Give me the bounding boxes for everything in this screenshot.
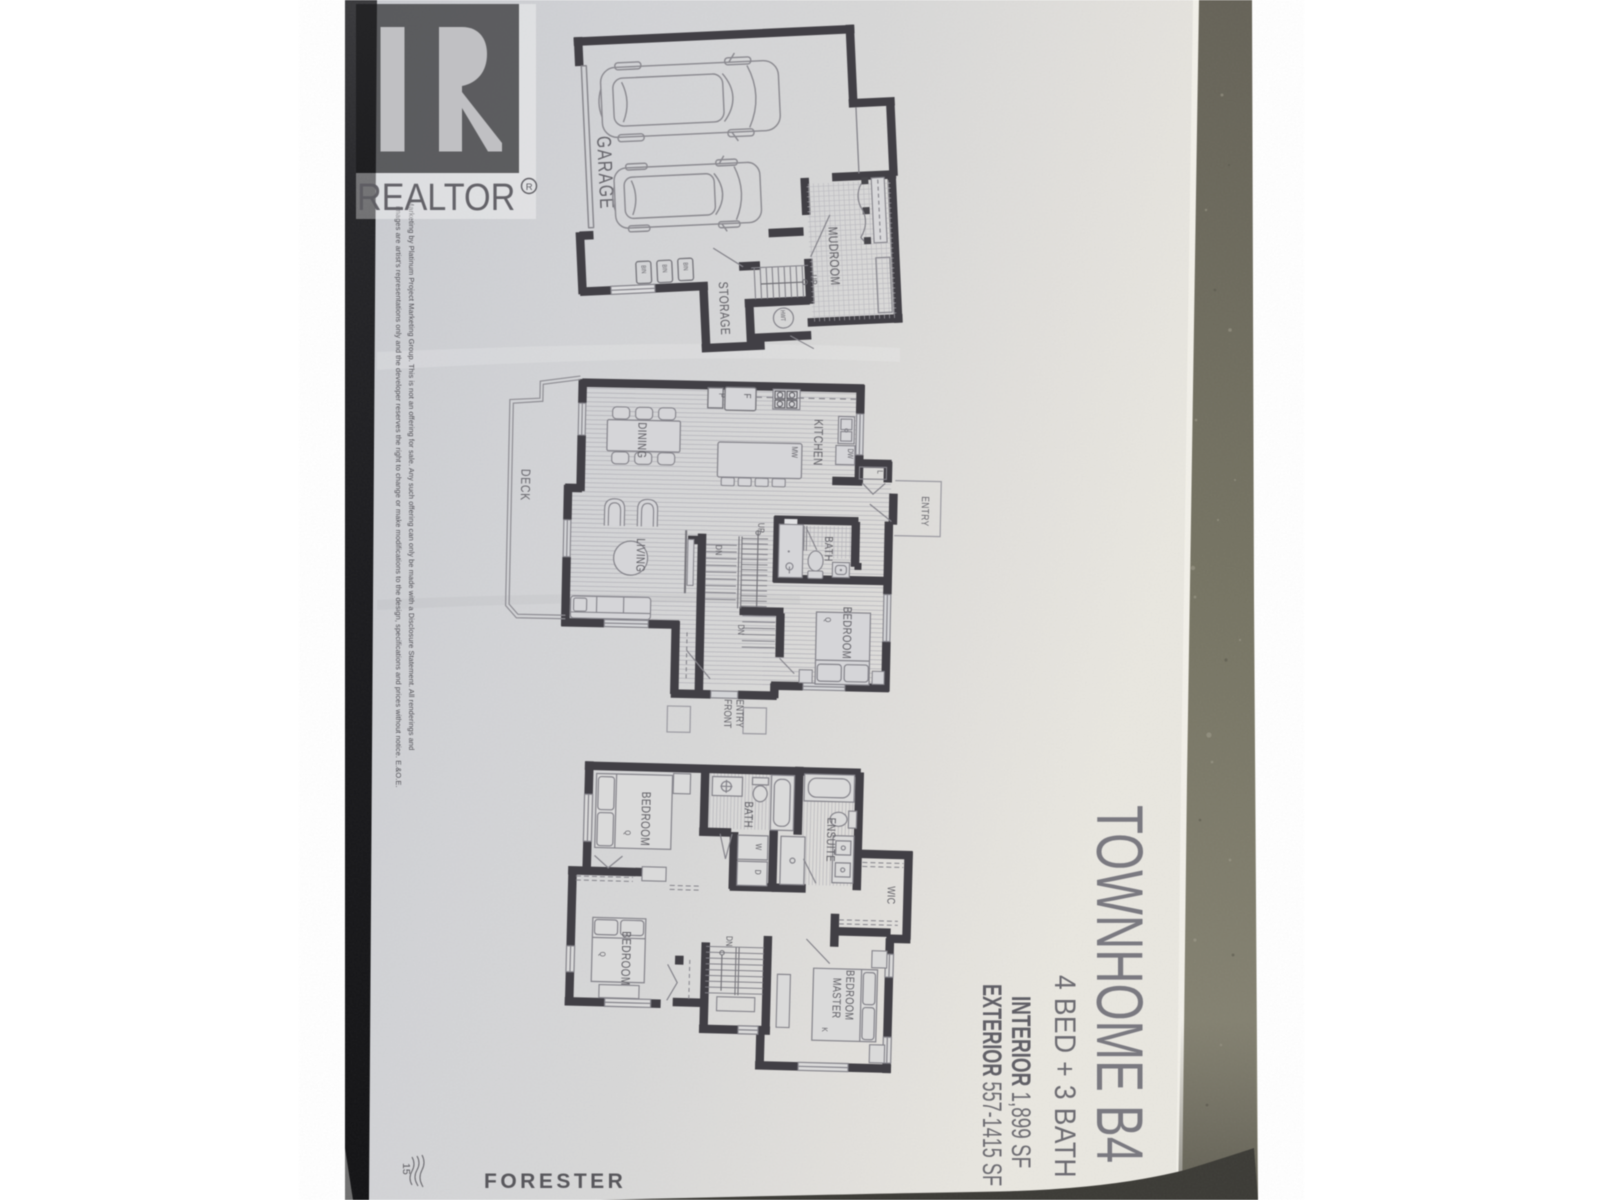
svg-text:LIVING: LIVING (633, 538, 647, 572)
svg-text:R: R (526, 182, 533, 193)
svg-text:DW: DW (845, 449, 853, 459)
svg-text:ENTRY: ENTRY (918, 496, 931, 527)
svg-text:BATH: BATH (741, 801, 755, 828)
svg-text:BIN: BIN (639, 265, 646, 273)
svg-text:MW: MW (789, 446, 799, 458)
svg-text:DN: DN (736, 624, 746, 635)
svg-text:F: F (742, 393, 753, 399)
svg-text:BEDROOM: BEDROOM (842, 970, 855, 1021)
svg-text:ENTRY: ENTRY (733, 699, 746, 728)
svg-text:DN: DN (724, 936, 734, 947)
svg-text:DN: DN (713, 545, 723, 556)
svg-text:K: K (820, 1027, 830, 1032)
svg-text:Q: Q (623, 830, 633, 836)
svg-text:Q: Q (823, 617, 833, 623)
svg-text:ENSUITE: ENSUITE (823, 817, 837, 862)
svg-text:KITCHEN: KITCHEN (810, 419, 824, 466)
svg-text:EXTERIOR 557-1415 SF: EXTERIOR 557-1415 SF (977, 984, 1008, 1186)
svg-text:15: 15 (400, 1163, 412, 1175)
svg-text:BEDROOM: BEDROOM (637, 792, 652, 847)
svg-text:STORAGE: STORAGE (715, 281, 732, 335)
svg-text:UP: UP (756, 523, 766, 533)
svg-text:BEDROOM: BEDROOM (839, 607, 853, 660)
svg-text:UP: UP (808, 274, 818, 284)
svg-text:TOWNHOME B4: TOWNHOME B4 (1082, 805, 1155, 1163)
svg-text:MASTER: MASTER (829, 978, 842, 1019)
svg-text:DECK: DECK (517, 469, 532, 501)
svg-text:BEDROOM: BEDROOM (618, 931, 633, 986)
svg-text:WIC: WIC (884, 886, 897, 905)
svg-text:INTERIOR 1,899 SF: INTERIOR 1,899 SF (1006, 996, 1036, 1168)
svg-text:BATH: BATH (821, 536, 834, 562)
svg-text:HWT: HWT (778, 310, 785, 322)
svg-text:FORESTER: FORESTER (484, 1170, 626, 1193)
svg-text:BIN: BIN (681, 262, 688, 270)
svg-text:REALTOR: REALTOR (357, 175, 515, 218)
svg-text:FRONT: FRONT (721, 699, 734, 728)
svg-text:images are artist's representa: images are artist's representations only… (394, 206, 403, 788)
svg-text:L: L (875, 470, 885, 474)
svg-text:Marketing by Platinum Project: Marketing by Platinum Project Marketing … (407, 200, 416, 750)
svg-text:Q: Q (598, 952, 608, 958)
svg-text:DINING: DINING (634, 422, 648, 458)
svg-text:MUDROOM: MUDROOM (825, 226, 842, 285)
svg-text:D: D (753, 870, 763, 876)
svg-text:W: W (753, 844, 763, 851)
svg-text:4 BED + 3 BATH: 4 BED + 3 BATH (1049, 975, 1083, 1178)
svg-text:BIN: BIN (660, 264, 667, 272)
